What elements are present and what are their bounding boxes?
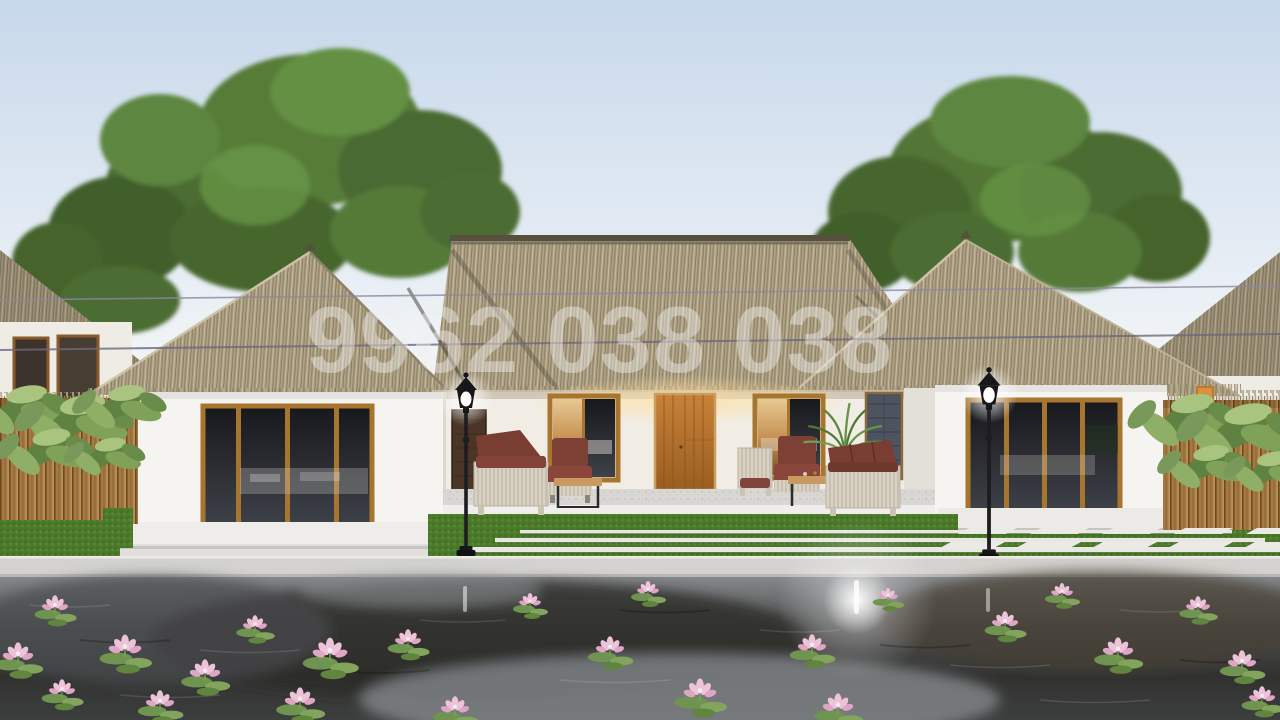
armchair-left: [548, 438, 592, 503]
scene: 9962 038 038: [0, 0, 1280, 720]
entry-door: [655, 394, 715, 490]
sofa-right: [826, 440, 900, 516]
lamp-reflection-left: [463, 586, 467, 612]
left-glass-door: [203, 406, 372, 526]
lamp-reflection-right: [986, 588, 990, 612]
villa-render: [0, 0, 1280, 720]
